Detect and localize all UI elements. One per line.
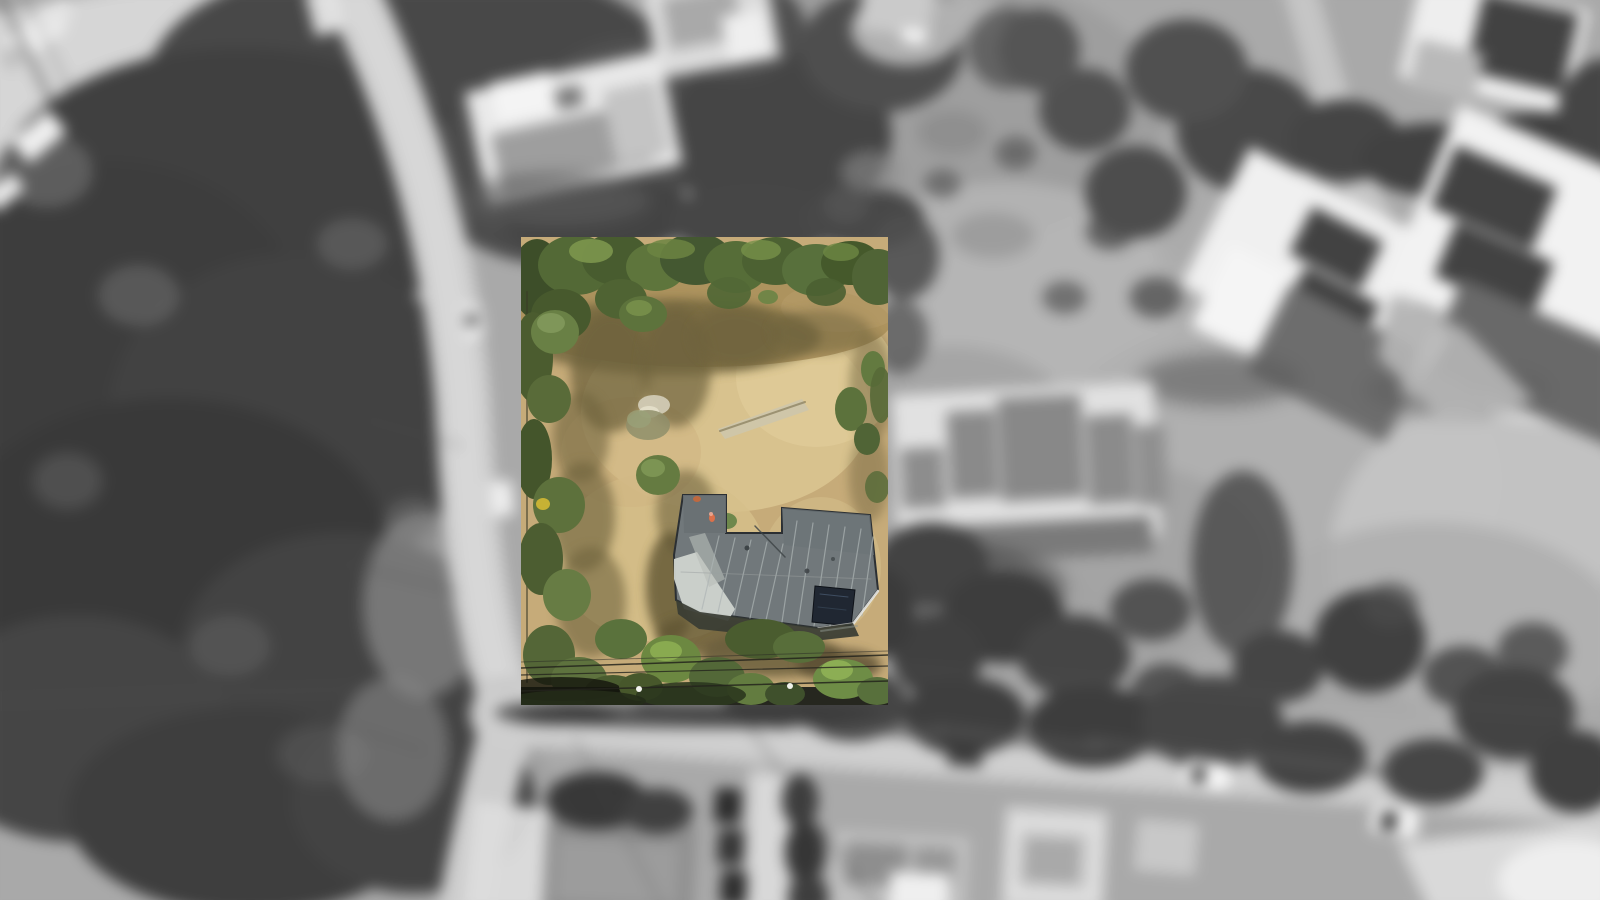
terrain-feature (758, 290, 778, 304)
highlighted-property-region (521, 237, 888, 705)
terrain-feature (1382, 739, 1484, 805)
terrain-feature (1086, 213, 1135, 250)
terrain-feature (1085, 414, 1136, 505)
terrain-feature (709, 512, 713, 516)
terrain-feature (721, 9, 771, 63)
terrain-feature (641, 459, 665, 477)
terrain-feature (537, 313, 565, 333)
terrain-feature (854, 423, 880, 455)
parked-car (720, 870, 748, 900)
yard (462, 801, 556, 900)
equipment-orange (693, 496, 701, 502)
terrain-feature (806, 278, 846, 306)
terrain-feature (1130, 277, 1183, 318)
terrain-feature (622, 788, 693, 833)
terrain-feature (995, 137, 1036, 170)
terrain-feature (917, 110, 988, 155)
terrain-feature (1134, 424, 1169, 506)
parked-car (713, 787, 742, 824)
terrain-feature (1134, 819, 1199, 876)
terrain-feature (707, 277, 751, 309)
terrain-feature (527, 375, 571, 423)
terrain-feature (98, 264, 179, 326)
van (489, 480, 514, 517)
terrain-feature (765, 682, 805, 705)
terrain-feature (997, 394, 1086, 501)
terrain-feature (998, 9, 1079, 91)
terrain-feature (647, 239, 695, 259)
terrain-feature (32, 452, 103, 510)
terrain-feature (317, 218, 388, 270)
terrain-feature (924, 170, 961, 199)
aerial-photo-stage (0, 0, 1600, 900)
terrain-feature (953, 213, 1034, 258)
car-dark (947, 744, 983, 768)
terrain-feature (785, 821, 826, 883)
terrain-feature (1042, 281, 1087, 314)
terrain-feature (626, 300, 652, 316)
terrain-feature (627, 410, 651, 428)
parked-car (717, 829, 745, 865)
terrain-feature (900, 447, 946, 509)
terrain-feature (1192, 766, 1206, 784)
terrain-feature (554, 839, 679, 900)
terrain-feature (745, 546, 750, 551)
terrain-feature (831, 557, 835, 561)
terrain-feature (691, 307, 781, 367)
insulator (787, 683, 793, 689)
terrain-feature (1192, 471, 1294, 657)
terrain-feature (190, 615, 271, 677)
insulator (636, 686, 642, 692)
terrain-feature (841, 151, 902, 192)
terrain-feature (1023, 836, 1082, 884)
terrain-feature (1362, 582, 1419, 627)
terrain-feature (823, 243, 859, 261)
property-plot-color-photo (521, 237, 888, 705)
stairwell-opening (812, 586, 855, 626)
terrain-feature (865, 471, 888, 503)
terrain-feature (683, 495, 726, 533)
terrain-feature (337, 677, 449, 821)
shadow (459, 174, 652, 228)
terrain-feature (741, 240, 781, 260)
terrain-feature (464, 313, 478, 327)
terrain-feature (888, 871, 949, 900)
terrain-feature (569, 239, 613, 263)
yellow-object (536, 498, 550, 510)
terrain-feature (805, 569, 810, 574)
terrain-feature (946, 410, 999, 499)
terrain-feature (821, 660, 853, 680)
shadow (1138, 353, 1301, 407)
terrain-feature (823, 186, 868, 223)
terrain-feature (543, 569, 591, 621)
terrain-feature (1110, 579, 1191, 641)
bottom-trees (595, 619, 647, 659)
terrain-feature (1126, 19, 1248, 122)
